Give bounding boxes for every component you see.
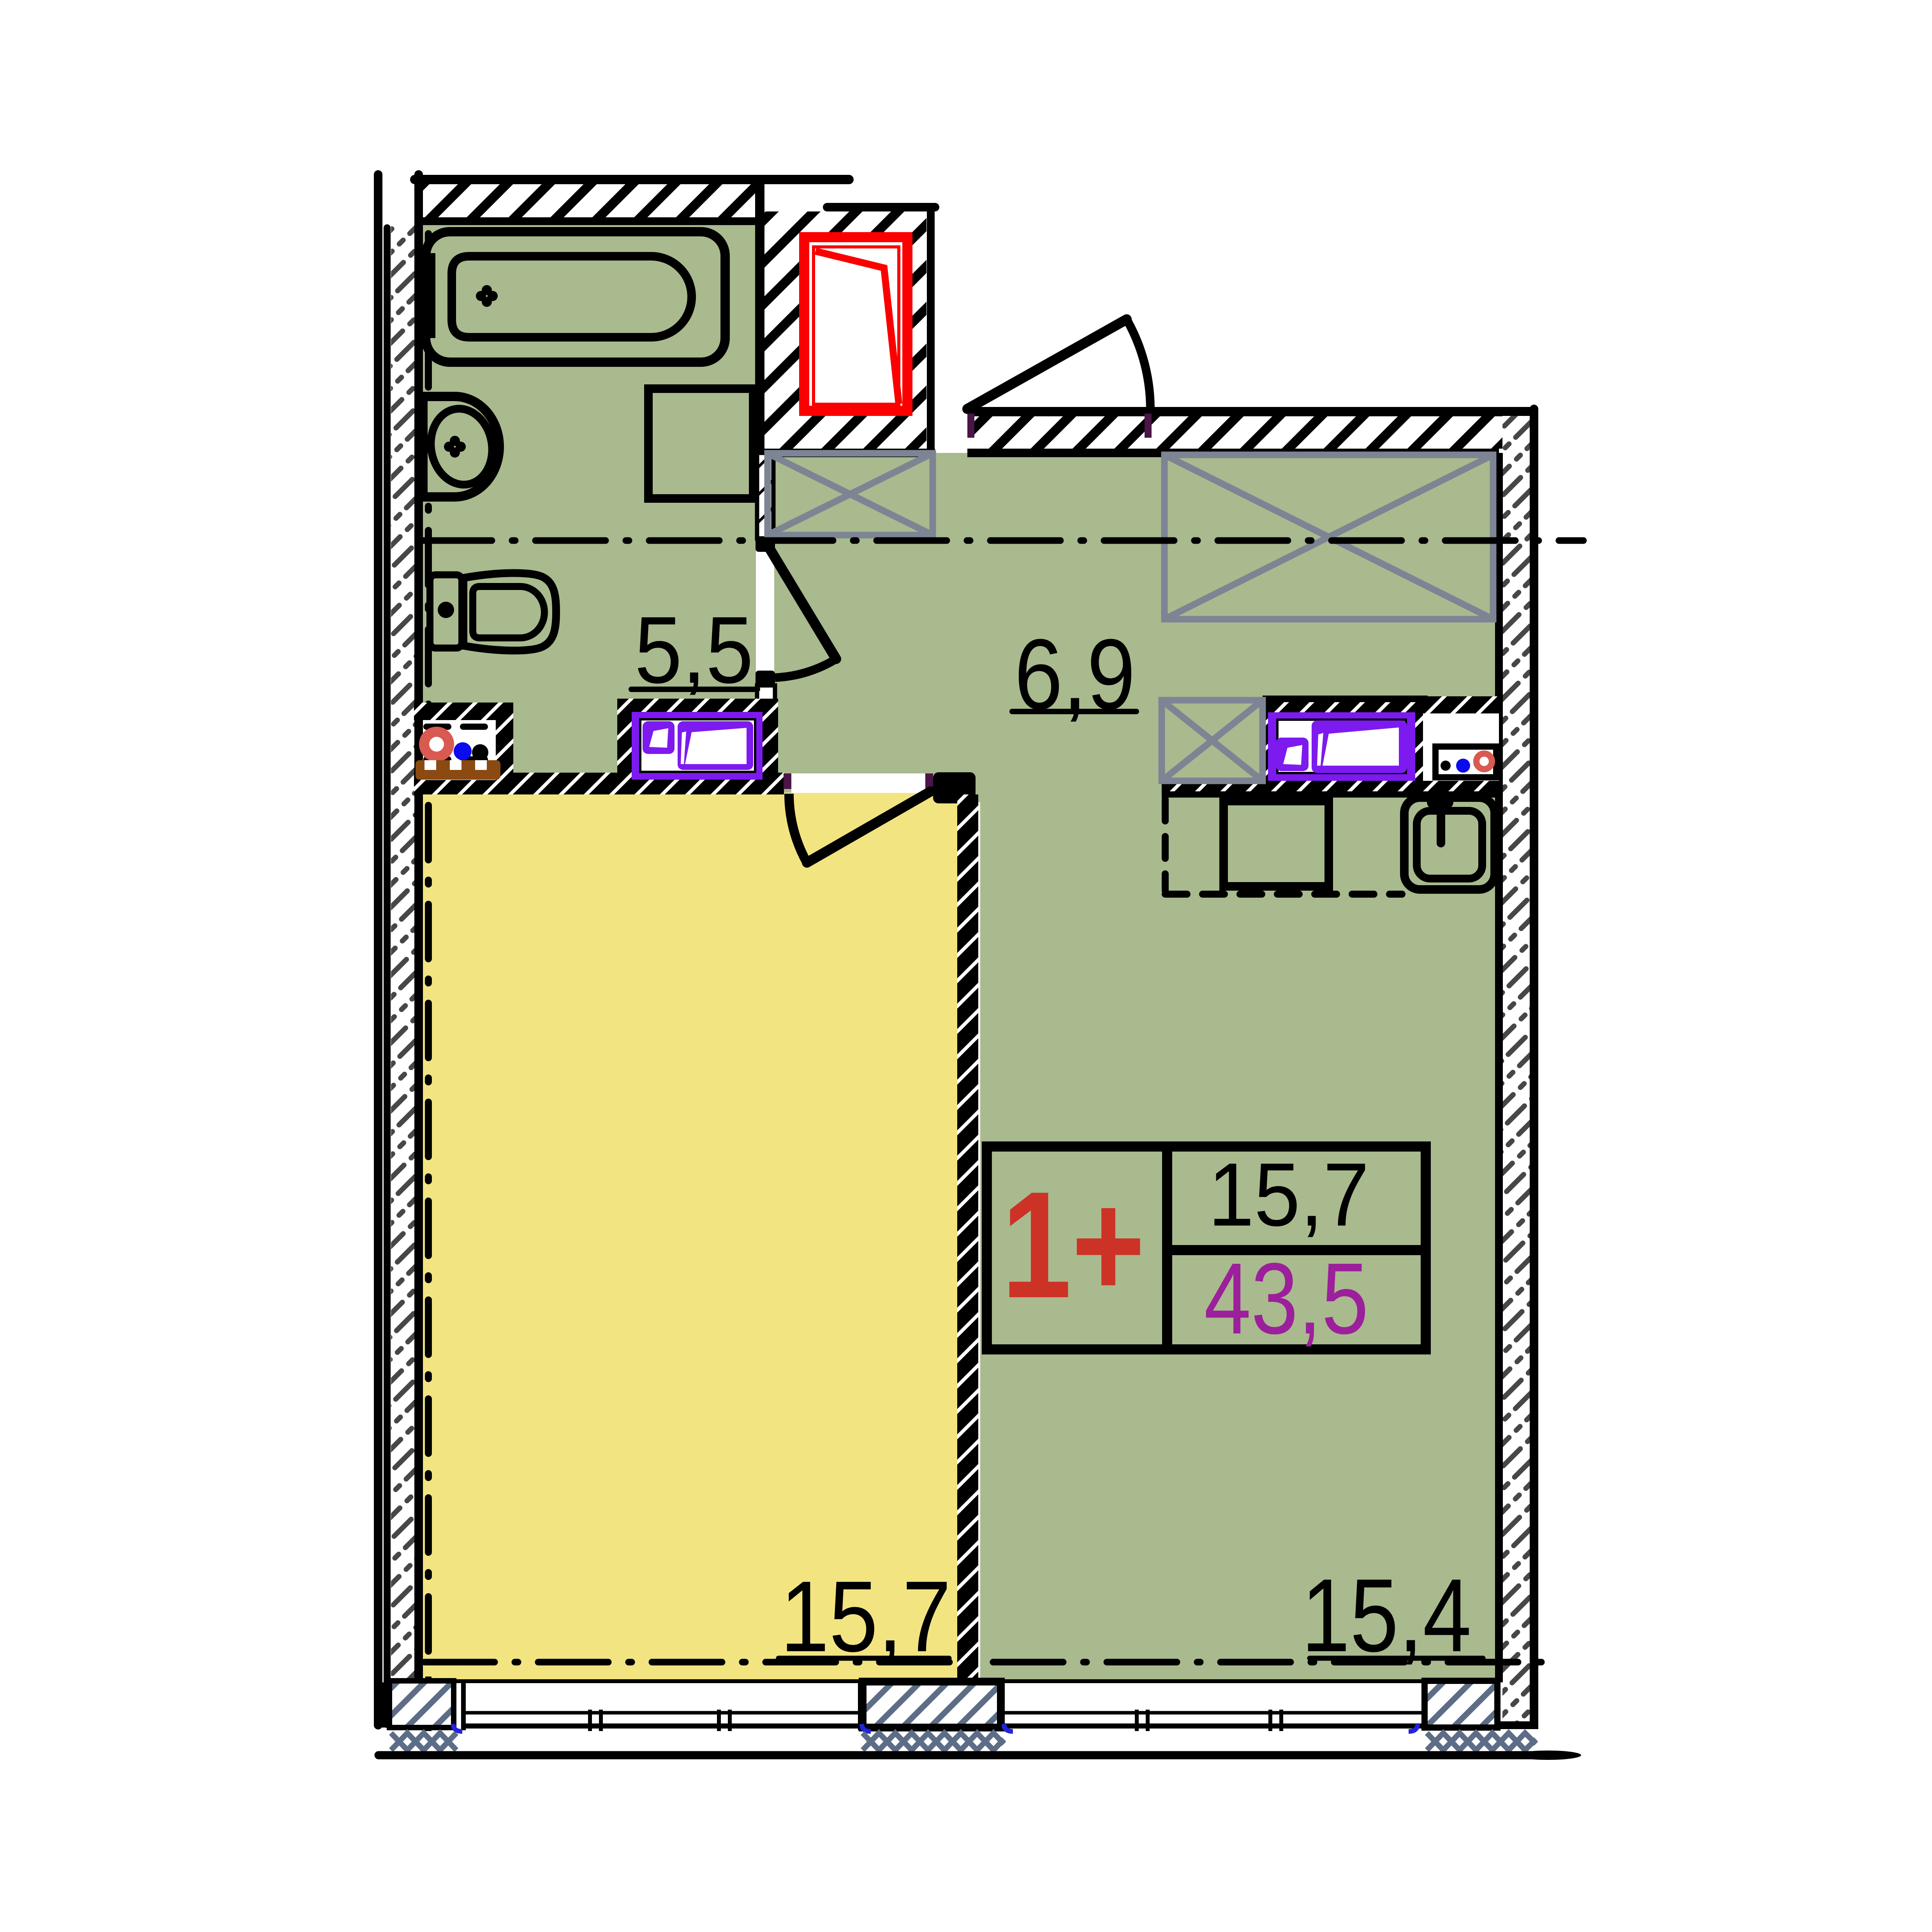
svg-text:1+: 1+ — [1001, 1160, 1145, 1329]
svg-text:43,5: 43,5 — [1204, 1242, 1369, 1355]
svg-text:15,7: 15,7 — [1208, 1145, 1369, 1245]
